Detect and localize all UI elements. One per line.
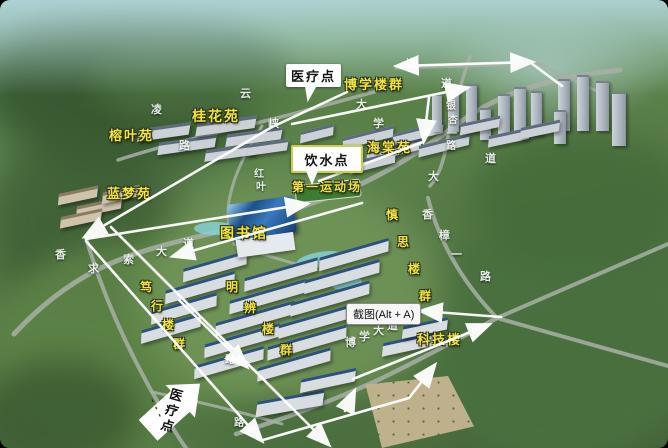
highrise-tower [466,84,477,132]
road-label: 大 [356,100,367,111]
forest-patch [0,120,180,320]
road-label: 云 [240,89,251,100]
building-slab [229,279,306,315]
road-label: 红 [254,170,264,180]
road-label: 路 [480,272,491,283]
building-slab [137,122,191,142]
field-patch [0,360,140,448]
building-slab [204,143,258,162]
area-label-diyi-yundongchang: 第一运动场 [292,181,362,193]
building-slab [157,135,217,155]
building-slab [76,197,122,218]
area-label-lanmeng-yuan: 蓝梦苑 [107,187,152,200]
building-slab [319,238,389,272]
road-label: 一 [447,130,457,140]
building-slab [215,300,294,336]
road-label: 香 [422,210,433,221]
building-slab [151,292,217,324]
callout-medical-point-top: 医疗点 [286,64,341,87]
area-label-duxing-louqun: 行 [151,300,165,312]
road-xiangzhang [428,198,497,318]
highrise-tower [596,81,609,131]
route-arrow [345,392,354,411]
area-label-mingbian-louqun: 楼 [262,323,276,335]
route-arrow [263,366,434,440]
road-label: 道 [485,154,496,165]
building-slab [392,121,443,145]
road-label: 路 [225,356,235,366]
building-slab [194,346,264,380]
screenshot-tooltip-text: 截图(Alt + A) [353,309,414,321]
road-label: 凌 [151,105,162,116]
forest-patch [0,0,290,170]
route-arrow [111,227,328,444]
road-label: 杏 [448,116,458,126]
area-label-guihua-yuan: 桂花苑 [192,109,240,123]
highrise-tower [448,88,459,132]
highrise-tower [554,110,566,144]
building-slab [382,332,434,356]
road-label: 道 [183,239,194,250]
pond [295,248,345,271]
building-slab [247,139,289,156]
road-label: 大 [156,247,167,258]
field-patch [420,220,668,448]
building-slab [225,127,283,147]
area-label-boxue-louqun: 博学楼群 [344,78,404,91]
highrise-tower [480,108,491,140]
route-arrow [422,311,501,317]
highrise-tower [531,91,542,135]
area-label-duxing-louqun: 群 [173,338,187,350]
road-top [396,64,540,68]
building-slab [204,323,279,358]
building-slab [58,186,98,206]
building-slab [300,124,334,144]
highrise-tower [558,79,570,131]
area-label-shensi-louqun: 思 [397,236,411,248]
road-top-right [540,64,604,94]
building-slab [267,324,346,360]
highrise-tower [612,92,626,146]
road-label: 道 [441,79,452,90]
meadow-patch [90,40,290,120]
area-label-rongye-yuan: 榕叶苑 [109,129,154,142]
plaza [356,376,474,448]
callout-tail [306,171,318,185]
area-label-mingbian-louqun: 辨 [244,302,258,314]
callout-water-point: 饮水点 [291,145,363,173]
road-qiusuo-avenue [14,70,620,334]
callout-medical-top-text: 医疗点 [291,66,336,85]
area-label-keji-lou: 科技楼 [417,333,462,346]
meadow-patch [240,60,500,150]
route-arrow [292,88,466,124]
road-label: 学 [373,119,384,130]
campus-aerial-map: 凌云峡路红叶道道银杏一路道大大学香樟一路求索大道博学大道路路香 桂花苑榕叶苑蓝梦… [0,0,668,448]
sports-field [294,179,362,204]
building-slab [165,271,235,305]
sky-haze-right [430,10,668,130]
area-label-mingbian-louqun: 明 [226,281,240,293]
callout-tail [300,84,316,104]
building-slab [304,259,379,294]
road-label: 大 [428,172,439,183]
building-slab [418,133,469,157]
area-label-haitang-yuan: 海棠苑 [367,141,412,154]
route-arrow [398,62,531,66]
road-label: 路 [234,419,244,429]
building-slab [244,257,318,292]
road-yinxing [430,56,470,186]
pond [331,275,362,291]
building-slab [520,120,560,140]
road-label: 求 [88,264,99,275]
building-slab [257,347,331,382]
library-building [227,196,300,259]
road-label: 博 [345,338,356,349]
callout-water-text: 饮水点 [304,150,349,169]
area-label-duxing-louqun: 楼 [162,319,176,331]
highrise-tower [432,94,442,132]
building-slab [60,208,102,228]
screenshot-tooltip: 截图(Alt + A) [346,303,421,325]
road-label: 峡 [268,119,279,130]
area-label-mingbian-louqun: 群 [280,344,294,356]
building-slab [141,313,201,344]
route-arrow [353,325,488,379]
highrise-tower [514,87,526,134]
building-slab [488,127,530,147]
road-east-upper [497,244,668,318]
highrise-tower [577,75,589,131]
route-arrow [179,300,246,366]
road-label: 香 [55,250,66,261]
building-slab [366,138,421,163]
road-east-lower [497,318,668,366]
area-label-duxing-louqun: 笃 [140,281,154,293]
road-label: 樟 [439,231,450,242]
area-label-shensi-louqun: 慎 [386,209,400,221]
building-slab [255,390,324,417]
road-label: 学 [359,332,370,343]
road-label: 大 [373,326,384,337]
building-slab [102,185,140,204]
building-slab [460,116,500,136]
building-slab [300,368,356,393]
road-boxue-avenue [236,318,497,434]
field-patch [160,400,460,448]
route-arrow [531,63,562,86]
road-label: 索 [123,255,134,266]
road-label: 叶 [256,183,266,193]
road-label: 路 [446,142,456,152]
area-label-shensi-louqun: 群 [419,290,433,302]
highrise-tower [498,94,510,136]
road-label: 一 [451,250,462,261]
road-label: 银 [446,102,456,112]
road-label: 道 [406,59,417,70]
screenshot-stage: 凌云峡路红叶道道银杏一路道大大学香樟一路求索大道博学大道路路香 桂花苑榕叶苑蓝梦… [0,0,668,448]
area-label-shensi-louqun: 楼 [408,263,422,275]
field-patch [0,240,270,448]
forest-patch [470,130,668,270]
building-slab [195,116,257,137]
route-arrow [424,97,429,140]
road-label: 路 [179,141,190,152]
